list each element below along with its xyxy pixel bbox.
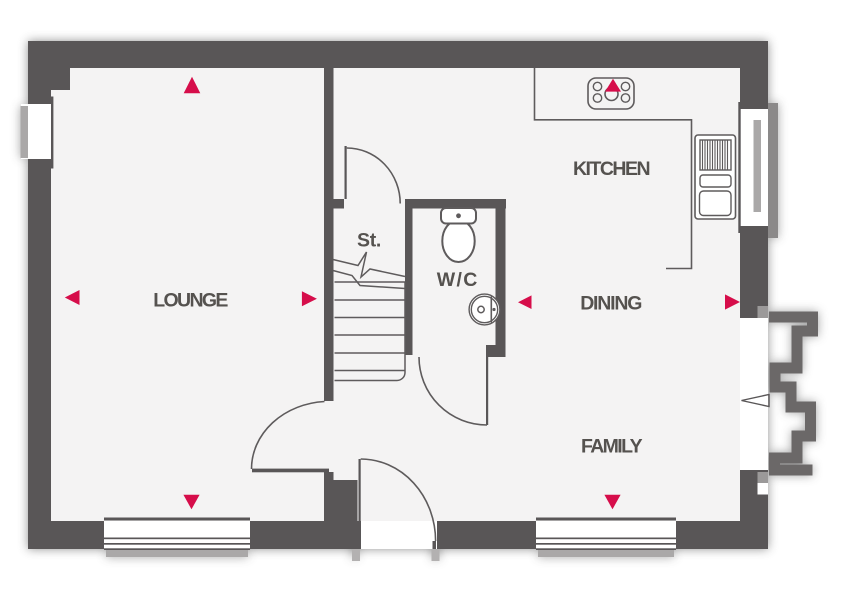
svg-text:FAMILY: FAMILY xyxy=(581,436,643,458)
svg-text:W/C: W/C xyxy=(437,269,479,291)
svg-text:DINING: DINING xyxy=(580,293,641,315)
svg-text:KITCHEN: KITCHEN xyxy=(573,158,649,180)
svg-text:St.: St. xyxy=(357,230,381,252)
svg-text:LOUNGE: LOUNGE xyxy=(153,290,228,312)
